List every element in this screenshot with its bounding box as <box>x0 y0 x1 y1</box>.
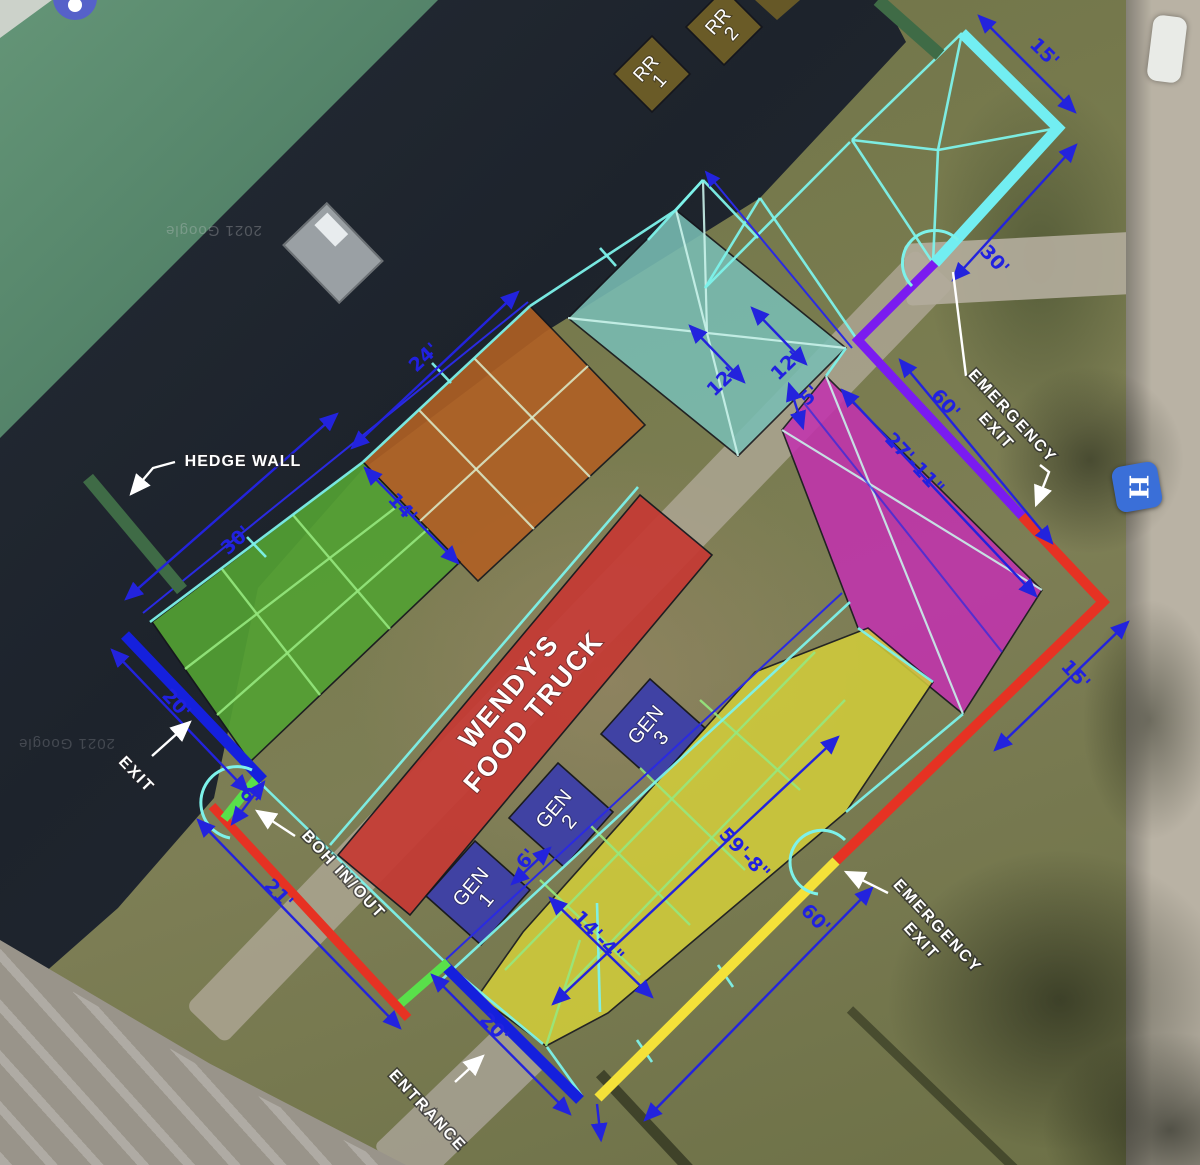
map-marker-right[interactable]: H <box>1110 460 1163 513</box>
dim-24: 24' <box>405 339 444 377</box>
dim-20-exit: 20' <box>157 685 195 724</box>
exit-label: EXIT <box>115 753 157 796</box>
site-plan-overlay: 15' 30' 60' 27'-11" 15' 12' 12' 5' 24' 1… <box>0 0 1200 1165</box>
dim-30-top: 30' <box>975 241 1013 280</box>
hedge-wall-bar-left <box>88 478 182 590</box>
zone-rr3-partial <box>755 0 800 20</box>
dim-21: 21' <box>259 875 297 914</box>
hedge-wall-bar-top <box>878 0 940 55</box>
dim-6-gen: 6' <box>512 845 541 874</box>
hedge-wall-label: HEDGE WALL <box>185 453 302 470</box>
site-plan-screenshot: 2021 Google 2021 Google <box>0 0 1200 1165</box>
map-marker-glyph: H <box>1122 475 1152 500</box>
